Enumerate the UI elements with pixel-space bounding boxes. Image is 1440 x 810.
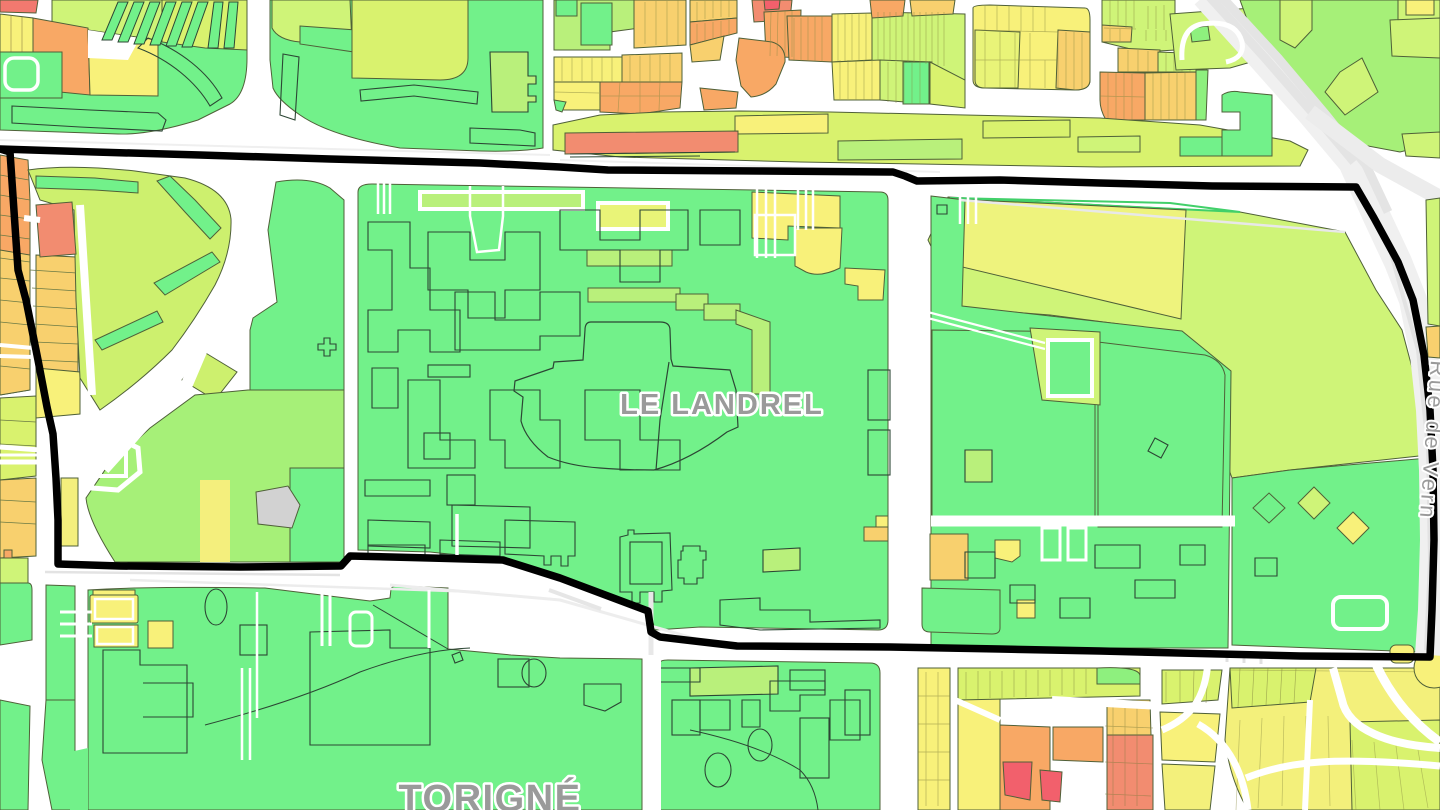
svg-text:LE LANDREL: LE LANDREL (620, 389, 824, 421)
svg-text:TORIGNÉ: TORIGNÉ (399, 776, 582, 810)
